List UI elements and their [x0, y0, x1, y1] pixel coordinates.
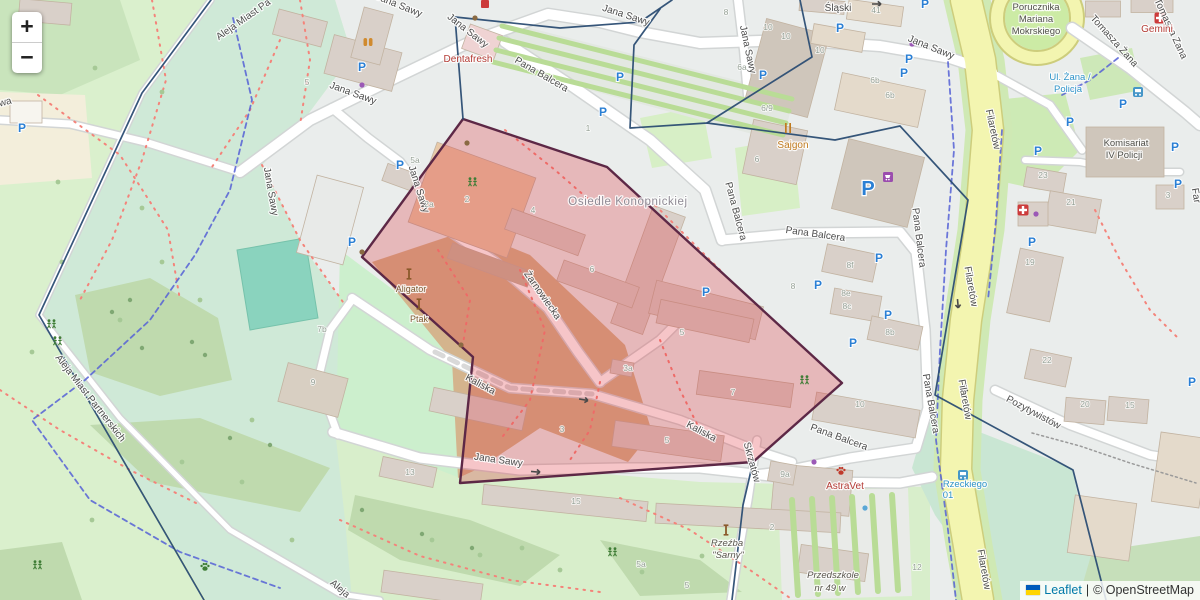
tree-icon: [93, 66, 98, 71]
poi-label: Ptak: [410, 314, 429, 324]
poi-label: Rzeźba: [711, 538, 743, 549]
tree-icon: [30, 350, 35, 355]
tree-icon: [140, 346, 144, 350]
zoom-in-button[interactable]: +: [12, 12, 42, 43]
svg-text:P: P: [18, 121, 26, 135]
svg-text:P: P: [1171, 140, 1179, 154]
housenumber-label: 8: [724, 7, 729, 17]
poi-label: Aligator: [396, 284, 427, 294]
poi-dot-icon: [811, 459, 816, 464]
svg-text:P: P: [836, 21, 844, 35]
housenumber-label: 19: [1025, 257, 1035, 267]
parking-icon: P: [1028, 235, 1036, 249]
building: [1067, 495, 1136, 561]
housenumber-label: 8e: [841, 288, 851, 298]
attribution-bar: Leaflet | © OpenStreetMap: [1020, 581, 1200, 600]
poi-label: Mokrskiego: [1012, 26, 1061, 37]
tree-icon: [430, 538, 435, 543]
svg-text:P: P: [396, 158, 404, 172]
parking-icon: P: [599, 105, 607, 119]
tree-icon: [478, 553, 483, 558]
tree-icon: [190, 340, 194, 344]
map-canvas[interactable]: PPPPPPPPPPPPPPPPPPPPPPPPJana SawyJana Sa…: [0, 0, 1200, 600]
parking-icon: P: [1188, 375, 1196, 389]
housenumber-label: 9a: [780, 469, 790, 479]
svg-text:P: P: [875, 251, 883, 265]
poi-dot-icon: [1033, 211, 1038, 216]
building: [10, 101, 42, 123]
building: [1086, 1, 1121, 17]
poi-label: Sajgon: [777, 140, 808, 151]
housenumber-label: 1: [586, 123, 591, 133]
poi-dot-icon: [464, 140, 469, 145]
parking-icon: P: [884, 308, 892, 322]
tree-icon: [700, 554, 705, 559]
tree-icon: [470, 546, 474, 550]
parking-icon: P: [1174, 177, 1182, 191]
map-container[interactable]: PPPPPPPPPPPPPPPPPPPPPPPPJana SawyJana Sa…: [0, 0, 1200, 600]
housenumber-label: 6/9: [761, 103, 773, 113]
poi-label: Policja: [1054, 84, 1083, 95]
housenumber-label: 7b: [317, 324, 327, 334]
poi-label: IV Policji: [1106, 150, 1142, 161]
housenumber-label: 13: [405, 467, 415, 477]
svg-text:P: P: [849, 336, 857, 350]
housenumber-label: 12: [912, 562, 922, 572]
svg-text:P: P: [814, 278, 822, 292]
poi-label: nr 49 w: [814, 583, 846, 594]
tree-icon: [228, 436, 232, 440]
housenumber-label: 10: [781, 31, 791, 41]
tree-icon: [90, 518, 95, 523]
ukraine-flag-icon: [1026, 585, 1040, 595]
svg-text:P: P: [861, 178, 874, 200]
poi-label: Rzeckiego: [943, 479, 987, 490]
poi-label: Mariana: [1019, 14, 1054, 25]
poi-dot-icon: [359, 249, 364, 254]
housenumber-label: 6b: [885, 90, 895, 100]
svg-text:P: P: [1188, 375, 1196, 389]
tree-icon: [198, 298, 203, 303]
poi-label: Gemini: [1141, 24, 1173, 35]
poi-label: "Sarny": [712, 550, 744, 561]
parking-icon: P: [861, 178, 874, 200]
housenumber-label: 3: [560, 424, 565, 434]
svg-text:P: P: [884, 308, 892, 322]
place-label: Osiedle Konopnickiej: [568, 196, 687, 208]
poi-dot-icon: [458, 342, 463, 347]
housenumber-label: 2: [770, 522, 775, 532]
tree-icon: [56, 180, 61, 185]
housenumber-label: 10: [855, 399, 865, 409]
parking-icon: P: [1034, 144, 1042, 158]
parking-icon: P: [1066, 115, 1074, 129]
housenumber-label: 9: [311, 377, 316, 387]
svg-text:P: P: [1034, 144, 1042, 158]
poi-label: Porucznika: [1013, 2, 1061, 13]
poi-label: Dentafresh: [444, 54, 493, 65]
parking-icon: P: [18, 121, 26, 135]
housenumber-label: 5: [305, 77, 310, 87]
tree-icon: [128, 298, 132, 302]
tree-icon: [118, 318, 123, 323]
svg-text:P: P: [900, 66, 908, 80]
parking-icon: P: [358, 60, 366, 74]
housenumber-label: 10: [763, 22, 773, 32]
openstreetmap-link[interactable]: © OpenStreetMap: [1093, 583, 1194, 597]
svg-text:P: P: [905, 52, 913, 66]
parking-icon: P: [814, 278, 822, 292]
poi-dot-icon: [862, 505, 867, 510]
parking-icon: P: [836, 21, 844, 35]
svg-text:P: P: [358, 60, 366, 74]
pharmacy-icon: [1018, 205, 1029, 216]
tree-icon: [290, 538, 295, 543]
svg-text:P: P: [1174, 177, 1182, 191]
housenumber-label: 15: [571, 496, 581, 506]
housenumber-label: 15: [1125, 400, 1135, 410]
tree-icon: [250, 418, 255, 423]
housenumber-label: 8c: [843, 301, 853, 311]
poi-dot-icon: [472, 15, 477, 20]
housenumber-label: 10: [815, 45, 825, 55]
housenumber-label: 5a: [410, 155, 420, 165]
attribution-separator: |: [1086, 583, 1089, 597]
housenumber-label: 8f: [846, 260, 854, 270]
zoom-control: + −: [12, 12, 42, 73]
bus-stop-icon: [1133, 87, 1143, 97]
housenumber-label: 4: [531, 205, 536, 215]
svg-text:P: P: [702, 285, 710, 299]
svg-text:P: P: [599, 105, 607, 119]
poi-label: Przedszkole: [807, 570, 859, 581]
svg-text:P: P: [616, 70, 624, 84]
svg-text:P: P: [759, 68, 767, 82]
tree-icon: [203, 353, 207, 357]
housenumber-label: 20: [1080, 399, 1090, 409]
tree-icon: [360, 508, 364, 512]
housenumber-label: 6a: [737, 62, 747, 72]
poi-label: 01: [943, 490, 954, 501]
poi-dot-icon: [359, 82, 364, 87]
tree-icon: [140, 206, 145, 211]
housenumber-label: 3: [1166, 190, 1171, 200]
svg-text:P: P: [1066, 115, 1074, 129]
housenumber-label: 3a: [623, 363, 633, 373]
housenumber-label: 5a: [636, 559, 646, 569]
parking-icon: P: [1119, 97, 1127, 111]
housenumber-label: 5: [685, 580, 690, 590]
parking-icon: P: [759, 68, 767, 82]
supermarket-icon: [883, 172, 893, 182]
housenumber-label: 41: [871, 5, 881, 15]
parking-icon: P: [849, 336, 857, 350]
street-label: Śląski: [825, 1, 852, 14]
tree-icon: [268, 443, 272, 447]
parking-icon: P: [921, 0, 929, 11]
shop-icon: [481, 0, 489, 8]
leaflet-link[interactable]: Leaflet: [1044, 583, 1082, 597]
tree-icon: [420, 532, 424, 536]
housenumber-label: 8b: [885, 327, 895, 337]
parking-icon: P: [348, 235, 356, 249]
tree-icon: [110, 310, 114, 314]
housenumber-label: 2: [465, 194, 470, 204]
housenumber-label: 21: [1066, 197, 1076, 207]
svg-text:P: P: [348, 235, 356, 249]
housenumber-label: 6: [755, 154, 760, 164]
housenumber-label: 5: [680, 327, 685, 337]
housenumber-label: 8: [791, 281, 796, 291]
parking-icon: P: [1171, 140, 1179, 154]
svg-text:P: P: [921, 0, 929, 11]
tree-icon: [160, 90, 165, 95]
housenumber-label: 2a: [424, 199, 434, 209]
svg-text:P: P: [1119, 97, 1127, 111]
parking-icon: P: [702, 285, 710, 299]
poi-label: AstraVet: [826, 481, 864, 492]
tree-icon: [240, 480, 245, 485]
poi-label: Komisariat: [1104, 138, 1149, 149]
housenumber-label: 7: [731, 387, 736, 397]
tree-icon: [640, 570, 645, 575]
housenumber-label: 22: [1042, 355, 1052, 365]
parking-icon: P: [900, 66, 908, 80]
housenumber-label: 6b: [870, 75, 880, 85]
tree-icon: [558, 568, 563, 573]
housenumber-label: 23: [1038, 170, 1048, 180]
parking-icon: P: [396, 158, 404, 172]
parking-icon: P: [616, 70, 624, 84]
poi-label: Ul. Żana /: [1049, 72, 1091, 83]
tree-icon: [180, 460, 185, 465]
svg-text:P: P: [1028, 235, 1036, 249]
parking-icon: P: [875, 251, 883, 265]
housenumber-label: 5: [665, 435, 670, 445]
tree-icon: [520, 546, 525, 551]
parking-icon: P: [905, 52, 913, 66]
zoom-out-button[interactable]: −: [12, 43, 42, 73]
housenumber-label: 6: [590, 264, 595, 274]
tree-icon: [160, 260, 165, 265]
